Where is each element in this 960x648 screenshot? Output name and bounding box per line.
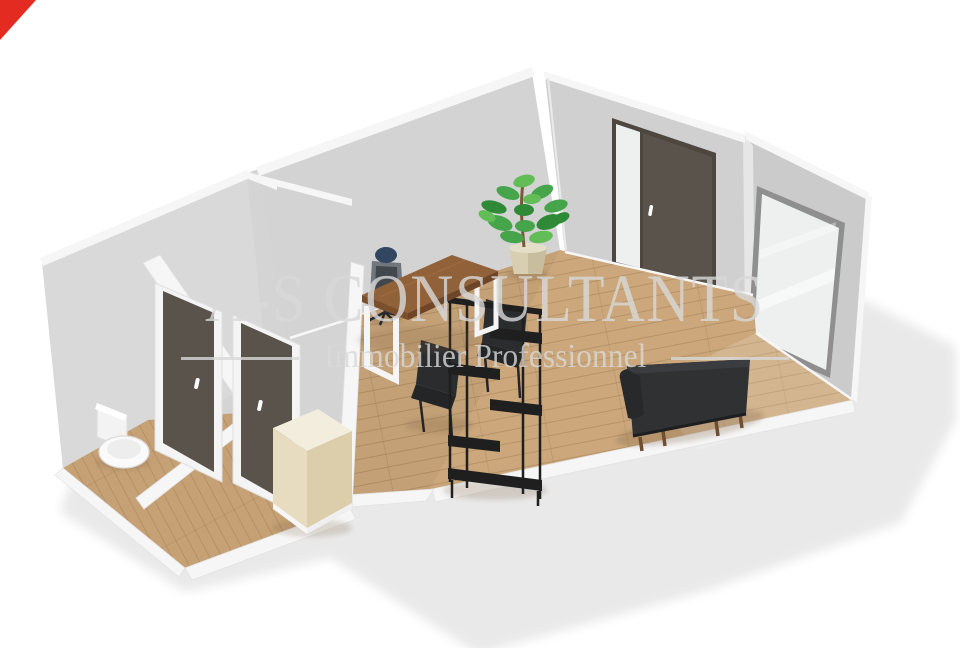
floor-plan-svg <box>0 0 960 648</box>
interior-door-1 <box>155 283 222 482</box>
interior-door-1-panel <box>163 291 214 472</box>
entrance-door-sidelight <box>616 124 640 268</box>
floor-plan-render <box>0 0 960 648</box>
entrance-door-panel <box>643 133 712 287</box>
corner-ribbon <box>0 0 36 40</box>
office-chair-headrest <box>375 247 397 263</box>
